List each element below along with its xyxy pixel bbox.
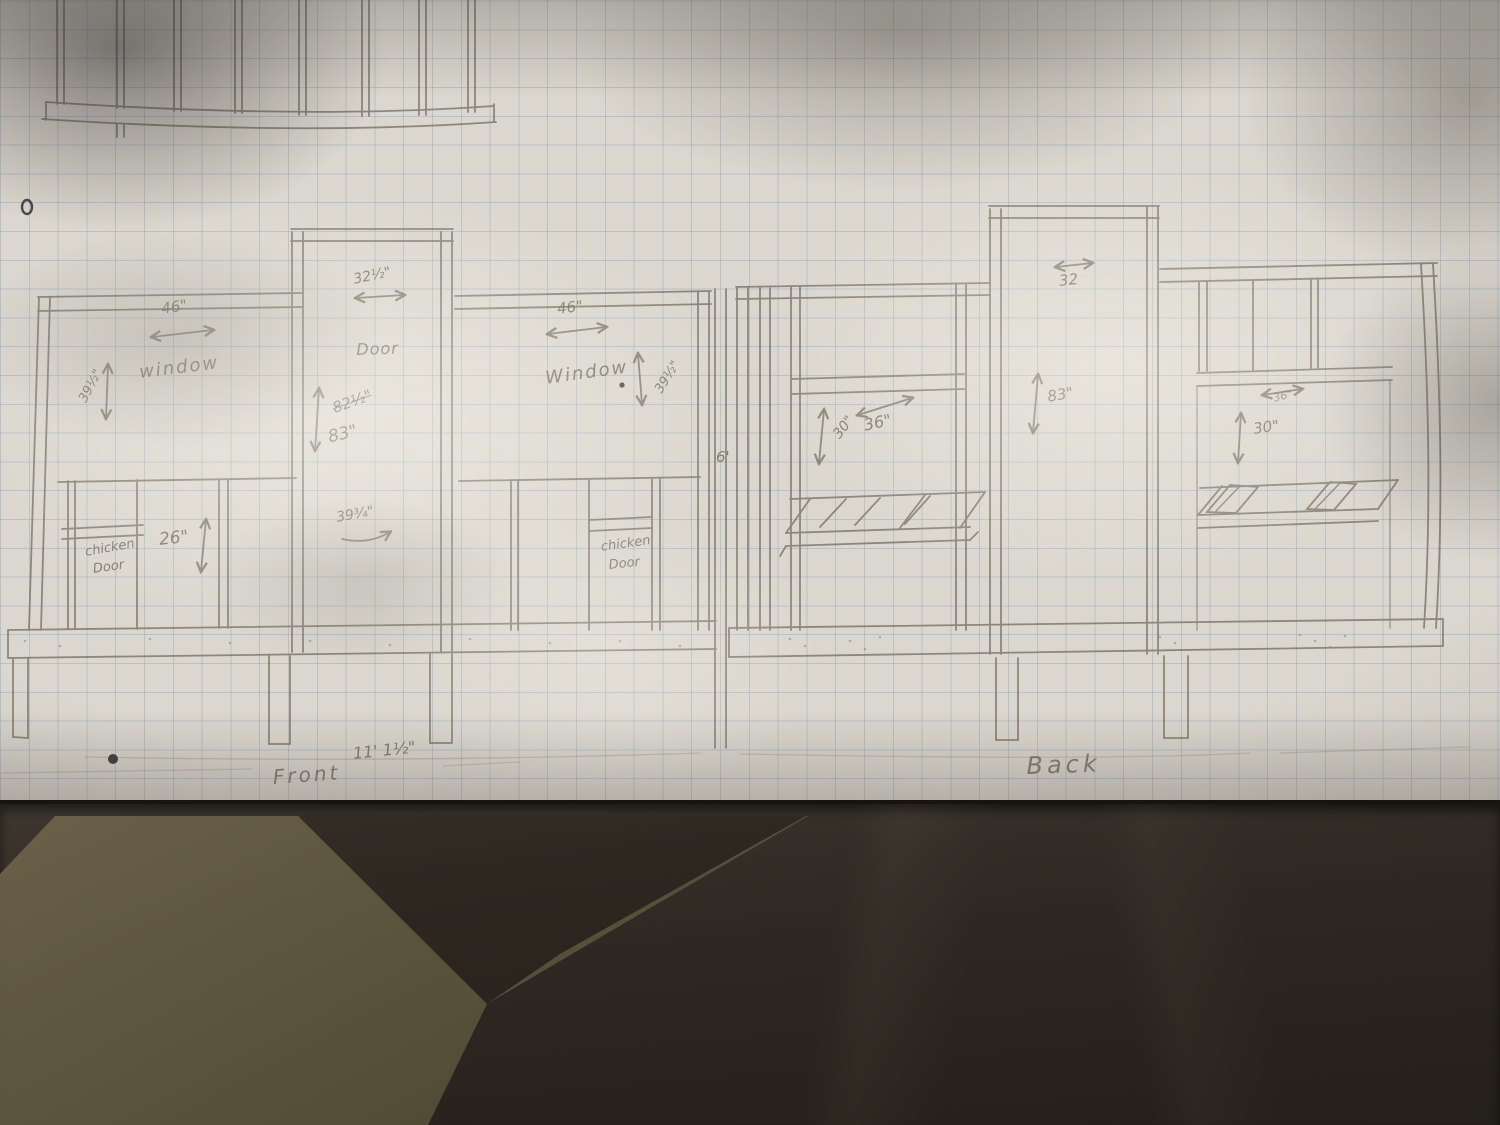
front-window-right-width-dim: 46" <box>556 297 584 318</box>
dimension-arrows <box>106 263 1302 571</box>
fabric-folds <box>0 804 1500 1125</box>
photo-of-sketch: 46" window 39½" 32½" Door 82½" 83" 39¾" … <box>0 0 1500 1125</box>
back-right-wall <box>1160 263 1440 630</box>
back-base <box>729 619 1470 757</box>
floor-height-dim: 6' <box>716 448 730 466</box>
base-stipple-dots <box>24 634 1347 651</box>
back-left-wall <box>736 283 990 630</box>
back-door-width-dim: 32 <box>1058 270 1079 290</box>
dark-table-surface <box>0 800 1500 1125</box>
front-right-wall <box>455 291 711 630</box>
back-view-label: Back <box>1026 749 1101 780</box>
corner-stud <box>715 289 726 748</box>
back-opening-right-height-dim: 30" <box>1252 416 1280 437</box>
top-partial-elevation <box>42 0 496 137</box>
front-door-label: Door <box>356 339 399 359</box>
chicken-door-left-height-dim: 26" <box>158 527 189 550</box>
front-view-label: Front <box>272 760 341 789</box>
front-left-wall <box>29 293 302 630</box>
ink-marks <box>22 200 625 764</box>
